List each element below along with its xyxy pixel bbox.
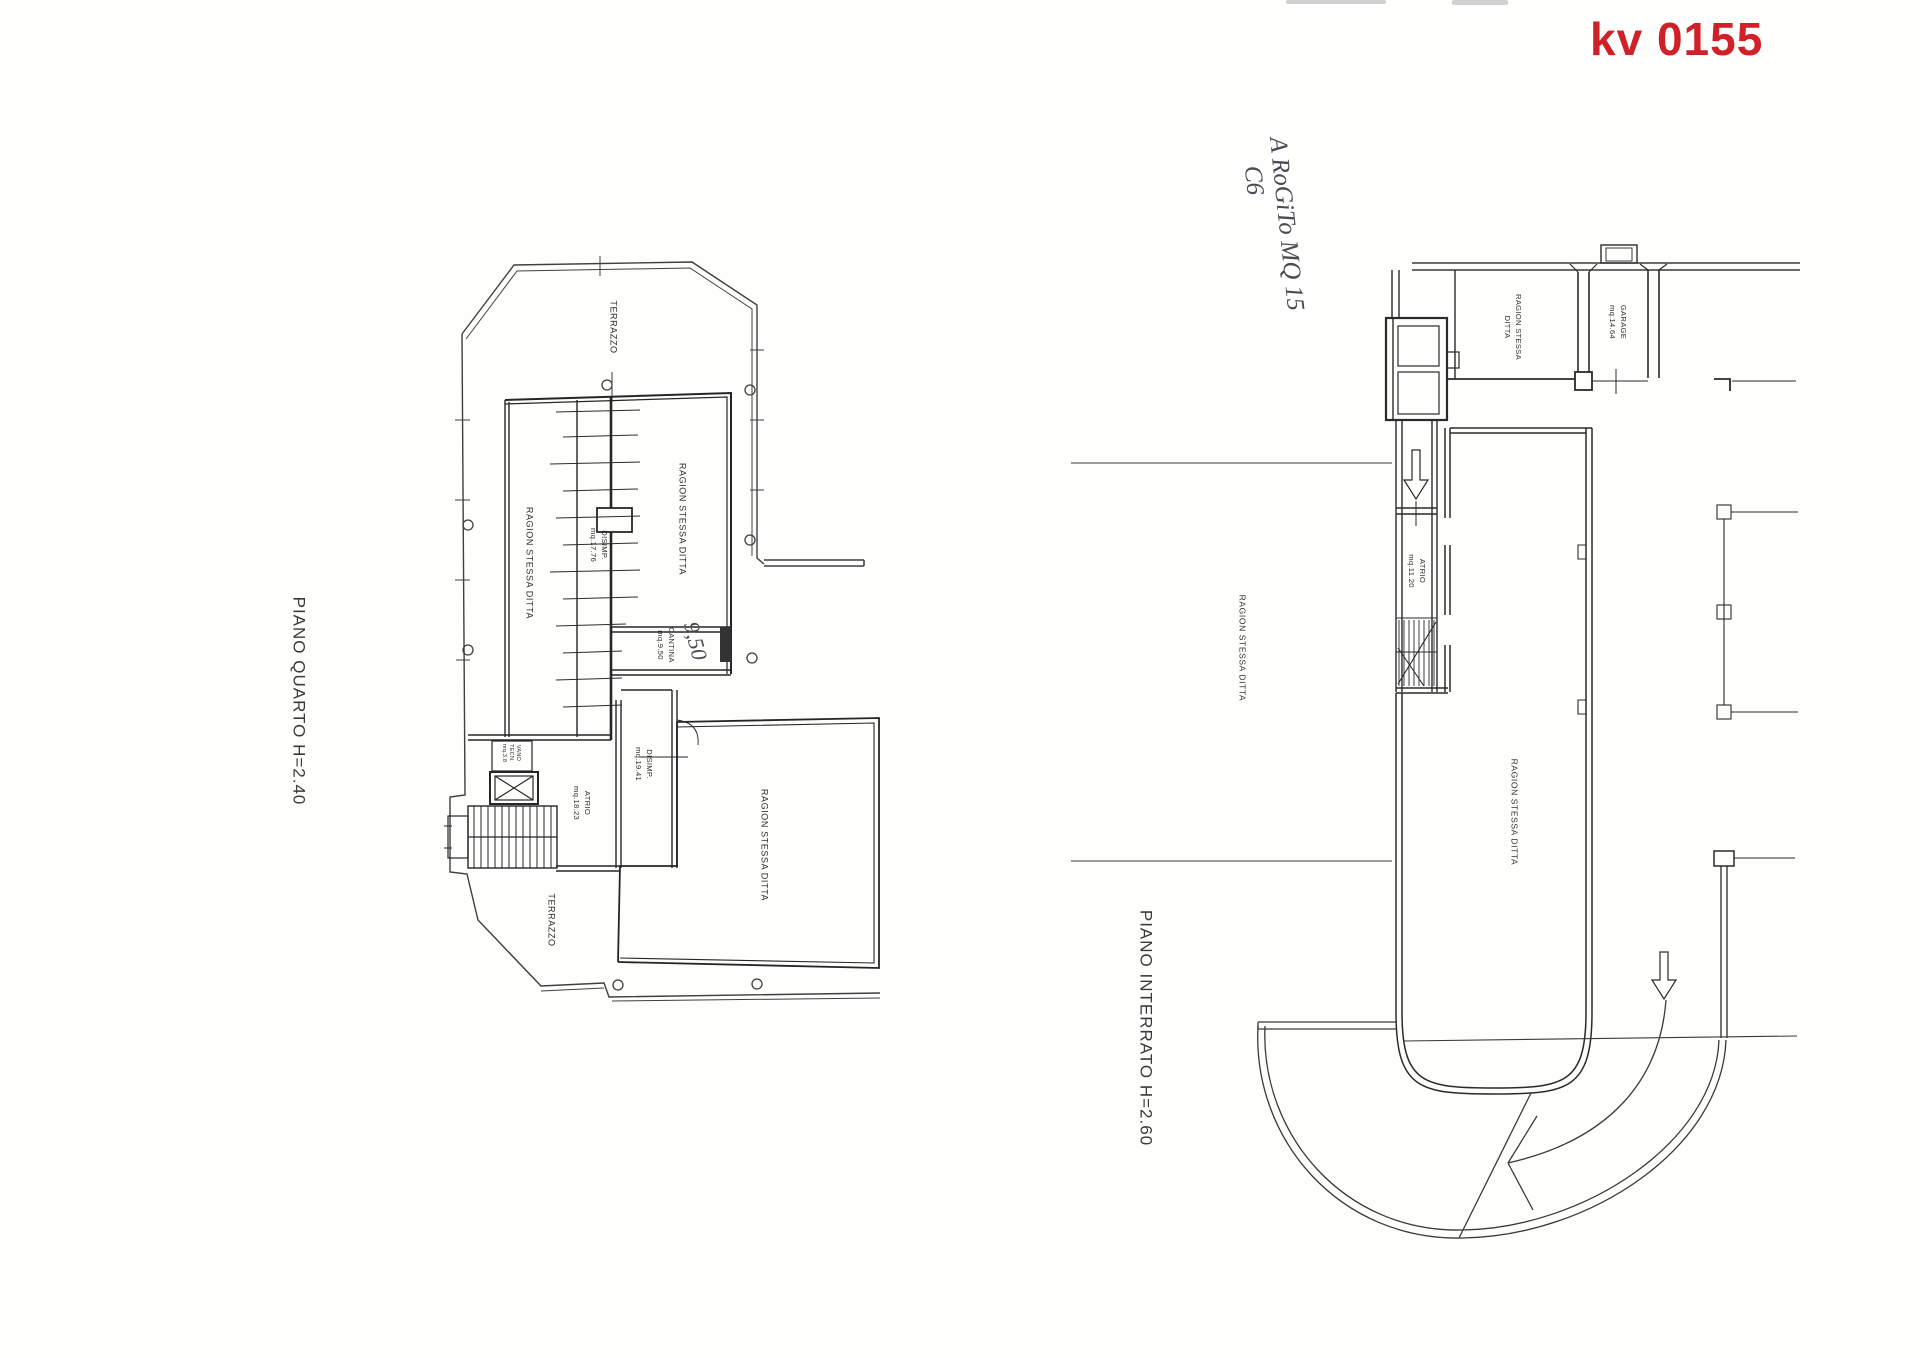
room-label-disimp1-area: mq.17.76	[589, 528, 597, 562]
room-label-ragion-right: RAGION STESSA DITTA	[678, 463, 687, 575]
room-label-ragion-garage-l2: DITTA	[1503, 316, 1511, 339]
room-label-cantina-name: CANTINA	[667, 627, 675, 662]
room-label-atrio-area: mq.18.23	[572, 786, 580, 820]
room-label-ragion-left: RAGION STESSA DITTA	[525, 507, 534, 619]
room-label-garage-area: mq.14.64	[1608, 305, 1616, 339]
plan-linework	[0, 0, 1920, 1358]
document-code: kv 0155	[1590, 12, 1763, 66]
plan-title-piano-quarto: PIANO QUARTO H=2.40	[291, 597, 308, 806]
room-label-atrio11-name: ATRIO	[1418, 559, 1426, 583]
room-label-atrio11-area: mq.11.20	[1407, 554, 1415, 588]
room-label-ragion-central: RAGION STESSA DITTA	[1510, 759, 1519, 866]
room-label-cantina-area: mq.9.50	[656, 630, 664, 660]
room-label-disimp2-area: mq.19.41	[634, 747, 642, 781]
room-label-vano-l2: TECN.	[507, 744, 513, 762]
room-label-garage-name: GARAGE	[1619, 305, 1627, 339]
room-label-disimp1-name: DISIMP.	[600, 530, 608, 559]
room-label-terrazzo-bottom: TERRAZZO	[547, 893, 556, 946]
room-label-ragion-bottom: RAGION STESSA DITTA	[760, 789, 769, 901]
room-label-vano-l1: VANO	[514, 745, 520, 761]
room-label-ragion-garage-l1: RAGION STESSA	[1514, 294, 1522, 360]
room-label-terrazzo-top: TERRAZZO	[609, 300, 618, 353]
room-label-atrio-name: ATRIO	[583, 791, 591, 815]
floor-plan-sheet: kv 0155 A RoGiTo MQ 15 C6 TERRAZZO RAGIO…	[0, 0, 1920, 1358]
piano-interrato-drawing	[1071, 245, 1800, 1238]
piano-quarto-drawing	[444, 256, 880, 1001]
room-label-ragion-west: RAGION STESSA DITTA	[1238, 595, 1247, 702]
room-label-disimp2-name: DISIMP.	[645, 749, 653, 778]
room-label-vano-l3: mq.3.8	[500, 744, 506, 762]
plan-title-piano-interrato: PIANO INTERRATO H=2.60	[1138, 910, 1155, 1146]
